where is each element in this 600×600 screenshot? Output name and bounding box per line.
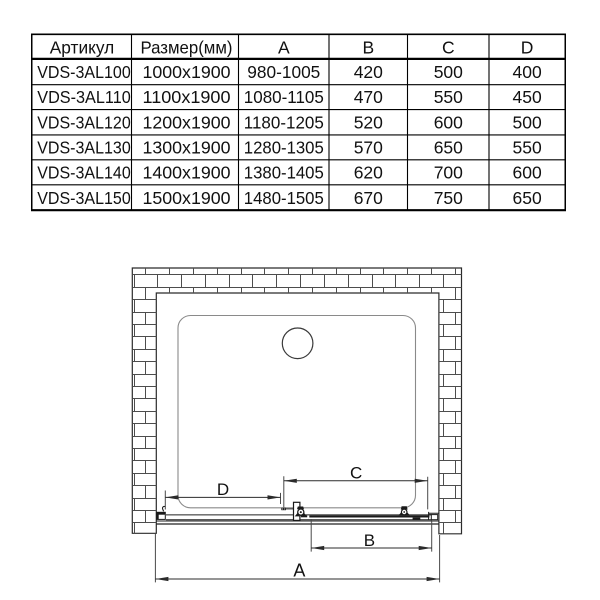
svg-text:VDS-3AL120: VDS-3AL120 xyxy=(37,112,131,132)
svg-text:420: 420 xyxy=(354,62,383,82)
svg-text:1080-1105: 1080-1105 xyxy=(244,87,324,107)
svg-text:VDS-3AL130: VDS-3AL130 xyxy=(37,137,131,157)
svg-text:Размер(мм): Размер(мм) xyxy=(141,37,233,57)
svg-text:1380-1405: 1380-1405 xyxy=(244,163,324,183)
svg-text:450: 450 xyxy=(512,87,541,107)
svg-text:1000x1900: 1000x1900 xyxy=(143,62,231,82)
svg-text:980-1005: 980-1005 xyxy=(247,62,320,82)
svg-text:650: 650 xyxy=(512,188,541,208)
svg-text:550: 550 xyxy=(512,137,541,157)
svg-text:C: C xyxy=(442,37,455,57)
svg-text:470: 470 xyxy=(354,87,383,107)
svg-text:500: 500 xyxy=(434,62,463,82)
svg-text:1500x1900: 1500x1900 xyxy=(143,188,231,208)
svg-text:C: C xyxy=(350,463,362,482)
svg-text:600: 600 xyxy=(512,163,541,183)
svg-text:D: D xyxy=(521,37,534,57)
svg-text:600: 600 xyxy=(434,112,463,132)
svg-text:700: 700 xyxy=(434,163,463,183)
svg-text:750: 750 xyxy=(434,188,463,208)
svg-text:500: 500 xyxy=(512,112,541,132)
svg-text:1180-1205: 1180-1205 xyxy=(244,112,324,132)
svg-text:B: B xyxy=(362,37,374,57)
svg-text:1100x1900: 1100x1900 xyxy=(143,87,231,107)
svg-text:VDS-3AL100: VDS-3AL100 xyxy=(37,62,131,82)
svg-text:1480-1505: 1480-1505 xyxy=(244,188,324,208)
svg-text:VDS-3AL110: VDS-3AL110 xyxy=(37,87,131,107)
svg-text:400: 400 xyxy=(512,62,541,82)
svg-text:A: A xyxy=(293,561,305,581)
svg-text:A: A xyxy=(278,37,290,57)
svg-text:1200x1900: 1200x1900 xyxy=(143,112,231,132)
svg-text:570: 570 xyxy=(354,137,383,157)
svg-text:520: 520 xyxy=(354,112,383,132)
svg-text:Артикул: Артикул xyxy=(50,37,115,57)
svg-text:620: 620 xyxy=(354,163,383,183)
svg-text:D: D xyxy=(217,480,229,499)
svg-text:550: 550 xyxy=(434,87,463,107)
svg-text:1300x1900: 1300x1900 xyxy=(143,137,231,157)
svg-text:VDS-3AL140: VDS-3AL140 xyxy=(37,163,131,183)
svg-text:B: B xyxy=(364,531,375,550)
svg-text:650: 650 xyxy=(434,137,463,157)
svg-text:1400x1900: 1400x1900 xyxy=(143,163,231,183)
svg-text:1280-1305: 1280-1305 xyxy=(244,137,324,157)
svg-text:670: 670 xyxy=(354,188,383,208)
svg-text:VDS-3AL150: VDS-3AL150 xyxy=(37,188,131,208)
